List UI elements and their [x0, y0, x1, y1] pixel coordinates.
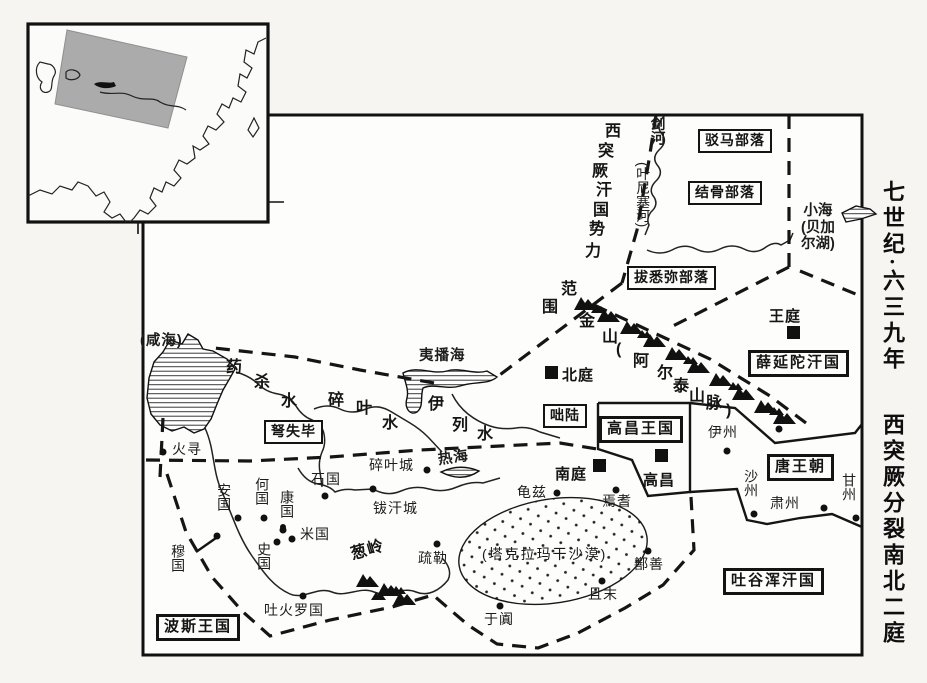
historical-map: 驳马部落结骨部落拔悉弥部落薛延陀汗国高昌王国唐王朝吐谷浑汗国波斯王国弩失毕咄陆王… — [0, 0, 927, 683]
char-yilieshui-1: 列 — [452, 418, 468, 434]
city-label-shiguo: 石国 — [311, 471, 341, 487]
city-dot-miguo-2 — [280, 524, 286, 530]
city-dot-miguo — [289, 536, 296, 543]
city-label-miguo: 米国 — [300, 526, 330, 542]
court-label-nanting: 南庭 — [555, 463, 587, 484]
char-jinshan-2: ( — [616, 342, 621, 358]
court-label-beiting: 北庭 — [562, 364, 594, 385]
char-jinshan-0: 金 — [579, 314, 595, 330]
region-box-nushibi: 弩失毕 — [264, 420, 323, 444]
char-sphere-2: 厥 — [592, 164, 608, 180]
court-label-wangting: 王庭 — [769, 305, 801, 326]
caption-event: 西突厥分裂南北二庭 — [876, 413, 908, 647]
city-dot-shanshan — [645, 548, 652, 555]
city-label-shazhou: 沙州 — [743, 469, 759, 497]
char-yaoshashui-0: 药 — [226, 360, 242, 376]
city-dot-shiguo — [322, 493, 329, 500]
city-label-qiemo: 且末 — [588, 586, 618, 602]
region-box-tang: 唐王朝 — [767, 454, 834, 481]
city-label-bohancheng: 钹汗城 — [373, 500, 418, 516]
city-dot-ganzhou — [853, 515, 860, 522]
map-caption: 七世纪·六三九年 西突厥分裂南北二庭 — [876, 180, 908, 647]
unnamed-dot — [776, 426, 783, 433]
water-label-xianhai: (咸海) — [140, 333, 183, 350]
char-sphere-3: 汗 — [596, 183, 612, 199]
city-dot-qiemo — [599, 578, 606, 585]
city-label-tuhuoluoguo: 吐火罗国 — [264, 602, 324, 618]
region-box-bosi: 波斯王国 — [156, 614, 240, 641]
city-label-huoxun: 火寻 — [172, 441, 202, 457]
char-sphere-4: 国 — [593, 203, 609, 219]
court-marker-gaochang — [655, 449, 668, 462]
region-box-jiegu: 结骨部落 — [688, 181, 762, 205]
court-marker-wangting — [787, 326, 800, 339]
char-sphere-6: 力 — [585, 244, 601, 260]
city-dot-qiuci — [554, 490, 561, 497]
char-yaoshashui-1: 杀 — [254, 375, 270, 391]
char-jinshan-3: 阿 — [633, 354, 649, 370]
char-suiyeshui-1: 叶 — [356, 401, 372, 417]
char-yilieshui-2: 水 — [477, 427, 493, 443]
char-sphere-0: 西 — [605, 124, 621, 140]
char-jinshan-7: 脉 — [706, 396, 722, 412]
city-label-shi_guo: 史国 — [256, 542, 272, 570]
water-label-yibohai: 夷播海 — [419, 348, 466, 365]
city-label-anguo: 安国 — [216, 483, 232, 511]
char-jinshan-8: ) — [726, 403, 731, 419]
city-label-muguo: 穆国 — [170, 544, 186, 572]
court-label-gaochang: 高昌 — [643, 469, 675, 490]
city-dot-shi_guo — [274, 539, 281, 546]
city-label-shanshan: 鄯善 — [634, 556, 664, 572]
city-dot-heguo — [261, 515, 268, 522]
water-label-xiaohai: 小海 (贝加 尔湖) — [801, 203, 835, 253]
char-jinshan-6: 山 — [689, 389, 705, 405]
city-dot-shule — [434, 541, 441, 548]
region-box-xueyantuo: 薛延陀汗国 — [748, 350, 849, 377]
city-dot-yizhou — [724, 448, 731, 455]
mountain-label-congling: 葱岭 — [347, 532, 386, 564]
char-jinshan-4: 尔 — [657, 366, 673, 382]
caption-era: 七世纪·六三九年 — [876, 180, 908, 373]
char-yilieshui-0: 伊 — [428, 397, 444, 413]
court-marker-nanting — [593, 459, 606, 472]
city-label-shule: 疏勒 — [418, 550, 448, 566]
city-dot-shazhou — [751, 511, 758, 518]
region-box-duolu: 咄陆 — [543, 404, 587, 428]
city-dot-anguo — [235, 515, 242, 522]
city-label-yizhou: 伊州 — [708, 424, 738, 440]
region-box-baximi: 拔悉弥部落 — [627, 266, 716, 290]
court-marker-beiting — [545, 366, 558, 379]
water-label-yenisai: (叶尼塞河) — [635, 162, 651, 227]
city-dot-suzhou — [821, 505, 828, 512]
char-jinshan-5: 泰 — [673, 379, 689, 395]
region-box-boma: 驳马部落 — [698, 129, 772, 153]
city-dot-tuhuoluoguo — [300, 593, 307, 600]
city-label-yanqi: 焉耆 — [602, 493, 632, 509]
city-dot-muguo — [214, 533, 221, 540]
city-label-qiuci: 龟兹 — [517, 484, 547, 500]
city-label-suzhou: 肃州 — [770, 495, 800, 511]
region-box-gaochang_kingdom: 高昌王国 — [599, 416, 683, 443]
city-label-suiyecheng: 碎叶城 — [369, 457, 414, 473]
water-label-jianhe: 剑河 — [648, 116, 665, 145]
map-labels: 驳马部落结骨部落拔悉弥部落薛延陀汗国高昌王国唐王朝吐谷浑汗国波斯王国弩失毕咄陆王… — [0, 0, 927, 683]
city-label-kangguo: 康国 — [279, 490, 295, 518]
region-box-tuyuhun: 吐谷浑汗国 — [723, 568, 824, 595]
city-dot-bohancheng — [370, 486, 377, 493]
city-dot-yutian — [497, 603, 504, 610]
char-suiyeshui-2: 水 — [382, 416, 398, 432]
desert-label: (塔克拉玛干沙漠) — [482, 544, 607, 564]
char-sphere-5: 势 — [589, 222, 605, 238]
char-sphere-8: 围 — [542, 300, 558, 316]
water-label-rehai: 热海 — [437, 448, 470, 469]
city-label-heguo: 何国 — [254, 477, 270, 505]
city-dot-suiyecheng — [424, 467, 431, 474]
char-suiyeshui-0: 碎 — [328, 393, 344, 409]
city-label-ganzhou: 甘州 — [841, 473, 857, 501]
city-label-yutian: 于阗 — [484, 611, 514, 627]
char-sphere-7: 范 — [561, 282, 577, 298]
city-dot-huoxun — [160, 449, 167, 456]
char-sphere-1: 突 — [598, 144, 614, 160]
char-yaoshashui-2: 水 — [281, 394, 297, 410]
